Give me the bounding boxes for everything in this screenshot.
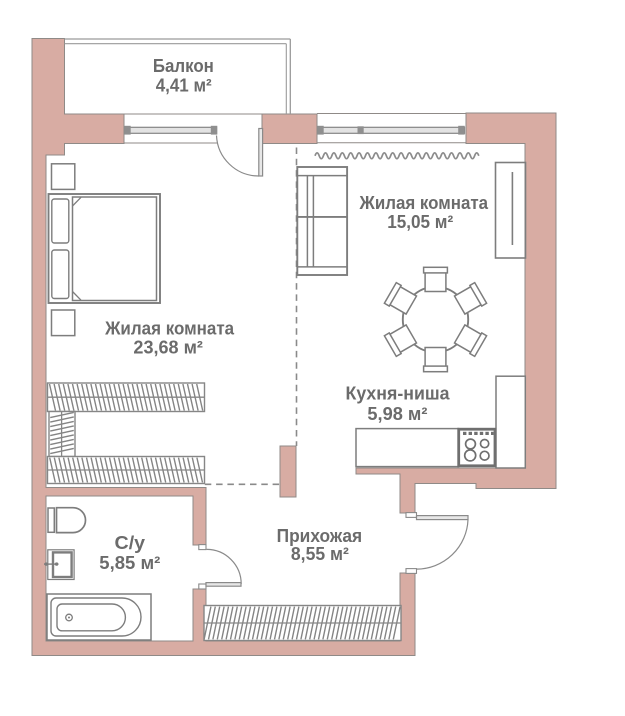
svg-text:5,98 м²: 5,98 м² [367, 404, 427, 424]
svg-text:С/у: С/у [115, 533, 146, 553]
svg-text:8,55 м²: 8,55 м² [291, 544, 349, 564]
svg-text:5,85 м²: 5,85 м² [99, 553, 160, 573]
svg-text:15,05 м²: 15,05 м² [387, 212, 453, 232]
svg-text:4,41 м²: 4,41 м² [156, 76, 212, 96]
svg-text:Балкон: Балкон [153, 56, 214, 76]
svg-text:Кухня-ниша: Кухня-ниша [346, 383, 451, 403]
svg-text:Жилая комната: Жилая комната [104, 319, 235, 339]
svg-text:Прихожая: Прихожая [277, 526, 363, 546]
svg-text:23,68 м²: 23,68 м² [133, 338, 203, 358]
svg-text:Жилая комната: Жилая комната [359, 193, 489, 213]
